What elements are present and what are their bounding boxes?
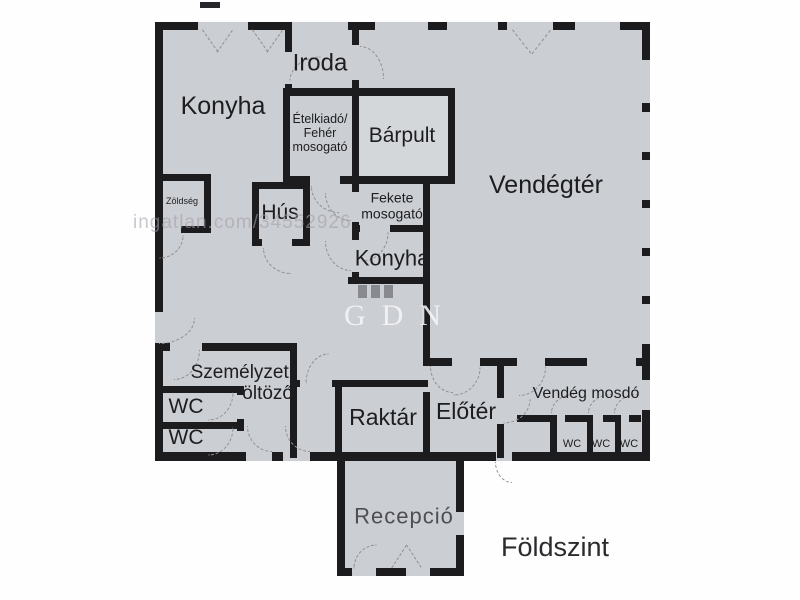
wall — [337, 568, 352, 576]
wall — [615, 415, 621, 458]
wall — [283, 88, 290, 184]
room-label-wc-upper: WC — [169, 395, 204, 419]
room-label-konyha-small: Konyha — [355, 247, 430, 272]
wall — [237, 453, 244, 461]
wall — [642, 103, 650, 112]
wall — [642, 296, 650, 304]
wall — [430, 568, 464, 576]
floor-plan: Konyha Iroda Ételkiadó/ Fehér mosogató B… — [0, 0, 800, 600]
room-label-konyha-main: Konyha — [181, 92, 266, 120]
wall — [352, 88, 455, 96]
room-label-fekete-mosogato: Fekete mosogató — [361, 190, 422, 221]
wall — [248, 22, 285, 30]
wall — [456, 458, 464, 512]
room-label-barpult: Bárpult — [369, 124, 436, 148]
agency-watermark: GDN — [344, 299, 457, 333]
wall — [603, 415, 615, 422]
wall — [376, 568, 406, 576]
listing-watermark: ingatlan.com/34552926 — [133, 212, 352, 234]
wall — [272, 452, 283, 461]
wall — [428, 22, 447, 30]
room-label-raktar: Raktár — [349, 405, 417, 431]
wall — [283, 88, 357, 96]
floor-title: Földszint — [501, 532, 609, 562]
wall — [348, 277, 430, 284]
room-label-vendegter: Vendégtér — [489, 171, 603, 199]
wall — [252, 239, 262, 246]
wall — [155, 350, 163, 461]
wall — [390, 225, 430, 232]
wall — [202, 343, 297, 351]
wall — [352, 88, 359, 184]
wall — [636, 358, 650, 366]
wall — [352, 225, 360, 232]
wall — [155, 174, 211, 181]
wall — [642, 22, 650, 60]
wall — [285, 22, 292, 52]
wall — [642, 248, 650, 256]
room-label-eloter: Előtér — [436, 399, 496, 425]
room-label-recepcio: Recepció — [354, 505, 454, 530]
wall — [550, 415, 557, 458]
wall — [155, 452, 246, 461]
wall — [252, 182, 310, 189]
wall — [292, 239, 310, 246]
room-label-wc-lower: WC — [169, 426, 204, 450]
wall — [553, 22, 575, 30]
room-label-zoldseg: Zöldség — [166, 196, 198, 206]
wall — [498, 22, 507, 30]
wall — [512, 452, 650, 461]
wall — [565, 415, 589, 422]
agency-logo-icon — [371, 285, 380, 298]
room-label-wc-stall: WC — [620, 438, 638, 450]
wall — [335, 387, 342, 458]
wall — [352, 184, 359, 192]
wall — [332, 380, 428, 387]
wall — [155, 343, 170, 351]
wall — [629, 415, 641, 422]
agency-logo-icon — [358, 285, 367, 298]
wall — [545, 358, 587, 366]
wall — [237, 419, 244, 431]
wall — [423, 392, 430, 458]
wall — [448, 88, 455, 184]
wall — [297, 380, 300, 387]
wall — [497, 362, 504, 398]
agency-logo-icon — [384, 285, 393, 298]
wall — [642, 152, 650, 160]
room-label-wc-stall: WC — [592, 438, 610, 450]
scan-artifact — [200, 2, 220, 8]
room-label-etelkiado: Ételkiadó/ Fehér mosogató — [293, 112, 348, 154]
wall — [497, 424, 504, 458]
room-label-iroda: Iroda — [293, 51, 348, 78]
wall — [337, 458, 345, 576]
wall — [423, 358, 452, 366]
wall — [352, 232, 359, 240]
room-label-vendeg-mosdo: Vendég mosdó — [533, 385, 640, 403]
wall — [155, 22, 163, 312]
wall — [642, 200, 650, 208]
wall — [352, 22, 359, 45]
wall — [352, 176, 455, 184]
room-label-wc-stall: WC — [563, 438, 581, 450]
door-swing-icon — [495, 462, 512, 483]
wall — [587, 415, 593, 458]
